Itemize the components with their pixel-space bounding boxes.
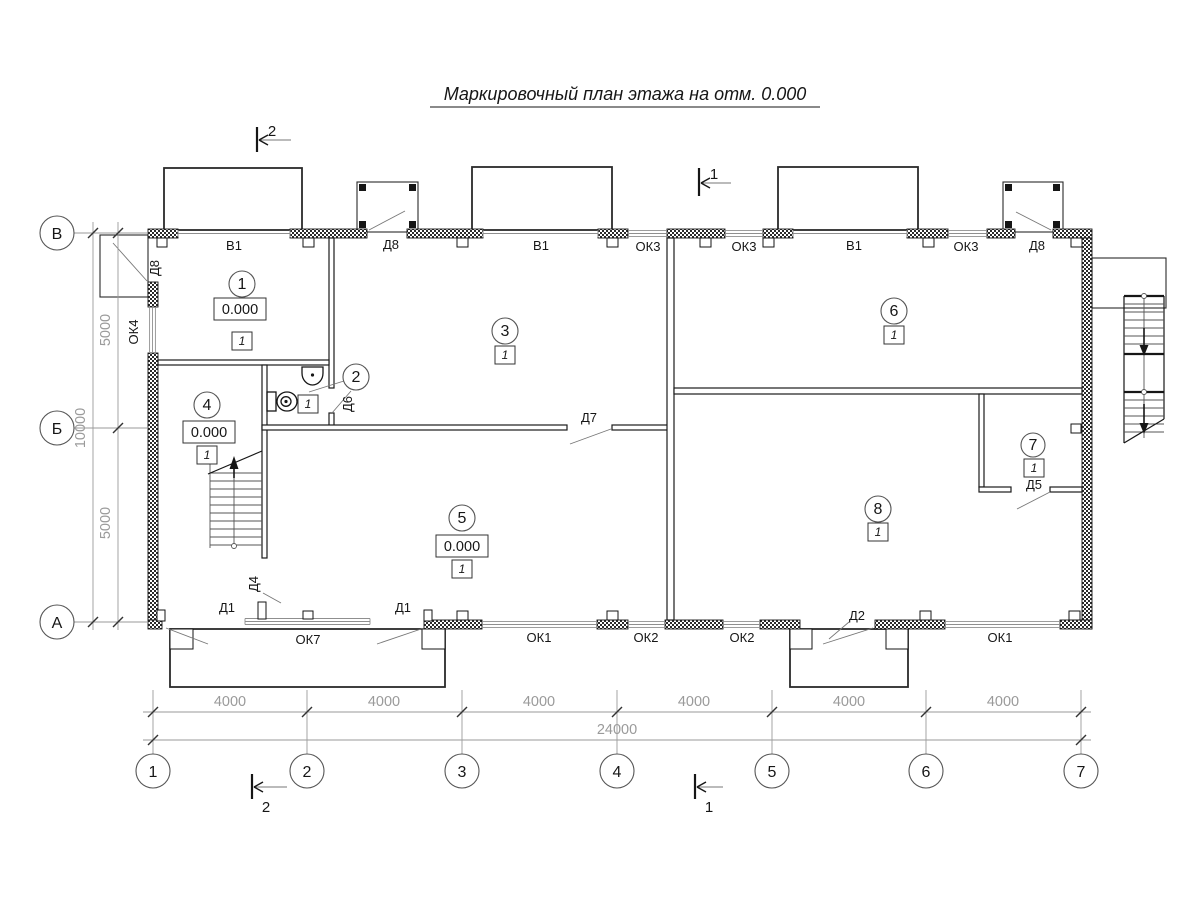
label-ok3-2: ОК3	[732, 239, 757, 254]
room-tag-7: 7 1	[1021, 433, 1045, 477]
door-leaf-d4	[258, 602, 266, 619]
dim-left-lower: 5000	[98, 507, 114, 539]
room-number: 6	[890, 303, 899, 320]
porch-top-mid	[472, 167, 612, 230]
label-v1-right: В1	[846, 238, 862, 253]
label-d2: Д2	[849, 608, 865, 623]
axis-grid-bottom: 4000 4000 4000 4000 4000 4000 24000 1 2 …	[136, 690, 1098, 788]
dim-bottom-3: 4000	[523, 694, 555, 710]
room-finish-mark: 1	[1031, 461, 1038, 475]
section-mark-1-top: 1	[699, 166, 731, 196]
label-ok2-left: ОК2	[634, 630, 659, 645]
vestibule-d8-left	[357, 182, 418, 232]
room-tag-6: 6 1	[881, 298, 907, 344]
axis-bubble-4: 4	[613, 764, 622, 781]
section-mark-2-top: 2	[257, 123, 291, 152]
dim-bottom-4: 4000	[678, 694, 710, 710]
label-d5: Д5	[1026, 477, 1042, 492]
stair-exterior	[1124, 294, 1164, 444]
window-ok4-lines	[150, 307, 156, 353]
interior-walls	[158, 238, 1082, 620]
room-tag-8: 8 1	[865, 496, 891, 541]
section-mark-1-bottom: 1	[695, 774, 723, 816]
porch-top-left	[164, 168, 302, 230]
window-v1-lines	[178, 230, 907, 237]
label-ok7: ОК7	[296, 632, 321, 647]
section-label: 1	[705, 799, 713, 816]
label-d6: Д6	[340, 396, 355, 412]
axis-grid-left: В Б А 5000 5000 10000	[40, 216, 148, 639]
label-ok2-right: ОК2	[730, 630, 755, 645]
label-ok3-1: ОК3	[636, 239, 661, 254]
label-d8-far-left: Д8	[147, 260, 162, 276]
label-d1-right: Д1	[395, 600, 411, 615]
vestibule-d8-right	[1003, 182, 1063, 232]
porch-top-right	[778, 167, 918, 230]
label-d7: Д7	[581, 410, 597, 425]
floor-plan: Маркировочный план этажа на отм. 0.000	[0, 0, 1200, 900]
dim-bottom-1: 4000	[214, 694, 246, 710]
dim-left-upper: 5000	[98, 314, 114, 346]
room-number: 5	[458, 510, 467, 527]
stair-interior	[208, 451, 262, 549]
label-ok1-left: ОК1	[527, 630, 552, 645]
dim-bottom-2: 4000	[368, 694, 400, 710]
room-number: 3	[501, 323, 510, 340]
label-ok4: ОК4	[126, 320, 141, 345]
label-d4: Д4	[246, 576, 261, 592]
section-label: 2	[268, 123, 276, 140]
label-d1-left: Д1	[219, 600, 235, 615]
axis-bubble-1: 1	[149, 764, 158, 781]
room-elevation: 0.000	[222, 302, 258, 318]
room-number: 1	[238, 276, 247, 293]
porch-bottom-right	[790, 629, 908, 687]
drawing-title: Маркировочный план этажа на отм. 0.000	[444, 84, 807, 104]
label-v1-mid: В1	[533, 238, 549, 253]
room-tag-4: 4 0.000 1	[183, 392, 235, 464]
dim-bottom-total: 24000	[597, 722, 637, 738]
room-tag-5: 5 0.000 1	[436, 505, 488, 578]
axis-bubble-5: 5	[768, 764, 777, 781]
room-number: 2	[352, 369, 361, 386]
room-finish-mark: 1	[204, 448, 211, 462]
axis-bubble-7: 7	[1077, 764, 1086, 781]
room-elevation: 0.000	[444, 539, 480, 555]
door-leaf-d1-right	[424, 610, 432, 621]
axis-bubble-3: 3	[458, 764, 467, 781]
room-finish-mark: 1	[305, 397, 312, 411]
section-mark-2-bottom: 2	[252, 774, 287, 816]
room-tag-1: 1 0.000 1	[214, 271, 266, 350]
room-number: 4	[203, 397, 212, 414]
section-label: 2	[262, 799, 270, 816]
room-finish-mark: 1	[891, 328, 898, 342]
room-finish-mark: 1	[459, 562, 466, 576]
vestibule-d8-far-left	[100, 235, 148, 297]
label-d8-top-right: Д8	[1029, 238, 1045, 253]
room-finish-mark: 1	[502, 348, 509, 362]
room-finish-mark: 1	[239, 334, 246, 348]
drawing-sheet: Маркировочный план этажа на отм. 0.000	[0, 0, 1200, 900]
stair-up-arrow	[230, 456, 239, 469]
room-number: 8	[874, 501, 883, 518]
title-block: Маркировочный план этажа на отм. 0.000	[430, 84, 820, 107]
dim-left-total: 10000	[73, 408, 89, 448]
door-leaf-d1-left	[157, 610, 165, 621]
axis-bubble-b: Б	[52, 421, 63, 438]
axis-bubble-2: 2	[303, 764, 312, 781]
section-label: 1	[710, 166, 718, 183]
exterior-stair-platform	[1092, 258, 1166, 308]
toilet-fixture	[267, 392, 297, 411]
label-d8-top-left: Д8	[383, 237, 399, 252]
label-v1-left: В1	[226, 238, 242, 253]
dim-bottom-6: 4000	[987, 694, 1019, 710]
axis-bubble-a: А	[52, 615, 63, 632]
room-number: 7	[1029, 437, 1038, 454]
room-tag-3: 3 1	[492, 318, 518, 364]
axis-bubble-v: В	[52, 226, 63, 243]
dim-bottom-5: 4000	[833, 694, 865, 710]
sink-fixture	[302, 367, 323, 385]
room-elevation: 0.000	[191, 425, 227, 441]
label-ok1-right: ОК1	[988, 630, 1013, 645]
label-ok3-3: ОК3	[954, 239, 979, 254]
room-finish-mark: 1	[875, 525, 882, 539]
axis-bubble-6: 6	[922, 764, 931, 781]
